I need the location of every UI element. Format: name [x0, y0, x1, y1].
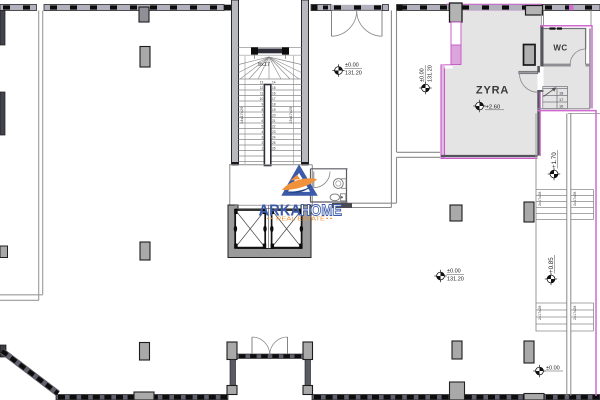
svg-text:131.20: 131.20 [345, 71, 362, 77]
svg-text:1: 1 [262, 147, 264, 151]
svg-text:13x17x29: 13x17x29 [288, 106, 293, 124]
svg-text:24: 24 [272, 136, 276, 140]
svg-text:±0.00: ±0.00 [546, 366, 560, 372]
svg-text:18: 18 [272, 103, 276, 107]
svg-text:17: 17 [559, 97, 563, 102]
svg-text:22: 22 [272, 125, 276, 129]
svg-text:15: 15 [272, 86, 276, 90]
svg-text:7: 7 [262, 114, 264, 118]
svg-text:18: 18 [559, 91, 563, 96]
svg-text:13: 13 [260, 81, 264, 85]
svg-text:±0.00: ±0.00 [447, 269, 461, 275]
svg-text:10: 10 [260, 97, 264, 101]
svg-text:ZYRA: ZYRA [476, 85, 509, 97]
svg-text:26: 26 [272, 147, 276, 151]
svg-text:3: 3 [262, 136, 264, 140]
svg-text:±0.00: ±0.00 [420, 68, 426, 82]
svg-text:REAL ESTATE: REAL ESTATE [276, 217, 326, 223]
svg-text:131.20: 131.20 [447, 277, 464, 283]
svg-text:2x17x28: 2x17x28 [538, 306, 542, 320]
svg-text:5: 5 [262, 125, 264, 129]
svg-text:±0.00: ±0.00 [345, 63, 359, 69]
svg-text:WC: WC [553, 44, 567, 53]
svg-text:12: 12 [260, 86, 264, 90]
svg-text:2x17x28: 2x17x28 [573, 306, 577, 320]
svg-text:4: 4 [262, 130, 264, 134]
svg-text:20: 20 [272, 114, 276, 118]
svg-text:+0.85: +0.85 [548, 257, 555, 273]
svg-text:17: 17 [272, 97, 276, 101]
svg-text:9: 9 [262, 103, 264, 107]
svg-text:16: 16 [272, 92, 276, 96]
svg-text:2x17x28: 2x17x28 [538, 192, 542, 206]
svg-text:5x17: 5x17 [258, 62, 270, 68]
svg-text:+1.70: +1.70 [551, 152, 558, 168]
svg-text:11: 11 [260, 92, 264, 96]
svg-text:23: 23 [272, 130, 276, 134]
svg-text:14x17x29: 14x17x29 [239, 106, 244, 124]
svg-text:131.20: 131.20 [428, 65, 434, 82]
svg-text:6: 6 [262, 119, 264, 123]
svg-text:8: 8 [262, 108, 264, 112]
svg-text:21: 21 [272, 119, 276, 123]
svg-text:14: 14 [272, 81, 276, 85]
svg-text:25: 25 [272, 141, 276, 145]
svg-text:16: 16 [559, 104, 563, 109]
svg-text:19: 19 [272, 108, 276, 112]
svg-text:2: 2 [262, 141, 264, 145]
svg-text:2x17x28: 2x17x28 [573, 192, 577, 206]
